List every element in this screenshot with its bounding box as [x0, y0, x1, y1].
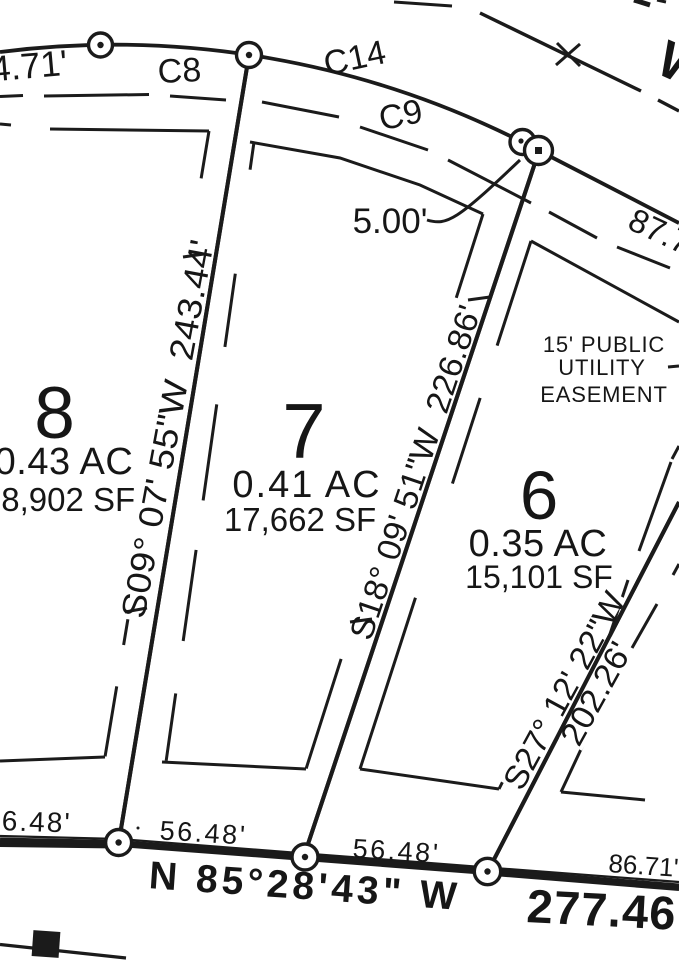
svg-text:56.48': 56.48' — [0, 805, 72, 839]
svg-text:0.43 AC: 0.43 AC — [0, 441, 133, 483]
svg-text:7: 7 — [282, 387, 325, 475]
svg-text:56.48': 56.48' — [159, 815, 248, 850]
svg-text:86.71': 86.71' — [608, 848, 679, 883]
svg-text:0.41 AC: 0.41 AC — [232, 464, 381, 506]
svg-text:EASEMENT: EASEMENT — [540, 382, 667, 407]
svg-text:18,902 SF: 18,902 SF — [0, 481, 135, 518]
svg-text:C8: C8 — [157, 51, 202, 91]
svg-text:17,662 SF: 17,662 SF — [224, 501, 376, 538]
svg-text:5.00': 5.00' — [353, 202, 428, 241]
svg-text:UTILITY: UTILITY — [558, 355, 646, 380]
svg-text:56.48': 56.48' — [352, 833, 441, 868]
svg-text:15' PUBLIC: 15' PUBLIC — [543, 332, 665, 357]
svg-text:277.46: 277.46 — [525, 879, 677, 940]
svg-text:15,101 SF: 15,101 SF — [465, 559, 613, 595]
